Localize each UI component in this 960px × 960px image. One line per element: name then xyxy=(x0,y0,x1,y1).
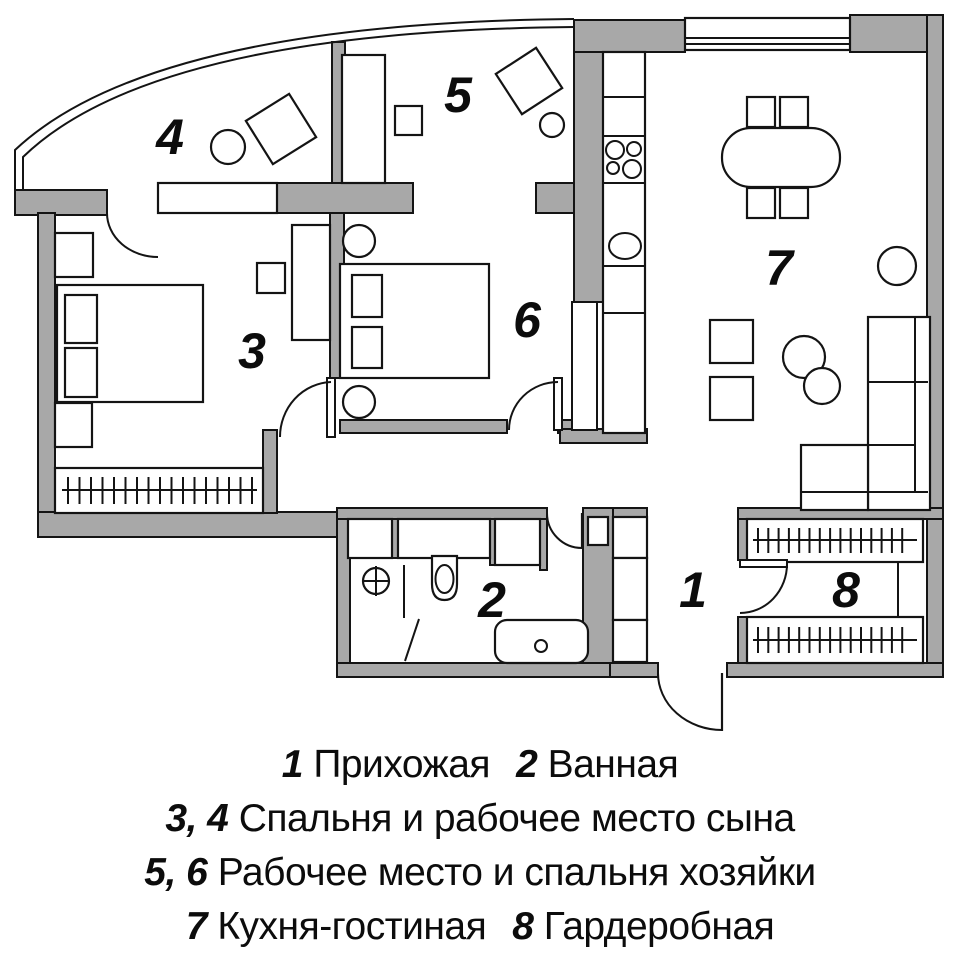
legend-room-number: 8 xyxy=(512,905,533,948)
pouf xyxy=(804,368,840,404)
hall-closet xyxy=(613,517,647,558)
wall-bottom-left xyxy=(38,512,337,537)
desk xyxy=(246,94,316,164)
room-3-furniture xyxy=(55,183,330,513)
legend-room-number: 2 xyxy=(516,743,537,786)
legend-entry: 8 Гардеробная xyxy=(512,905,774,948)
legend-room-name: Гардеробная xyxy=(533,905,774,948)
wall-bottom xyxy=(727,663,943,677)
legend-entry: 7 Кухня-гостиная xyxy=(186,905,486,948)
wall-kitchen-back xyxy=(574,20,603,302)
bathtub xyxy=(495,620,588,663)
legend-room-name: Прихожая xyxy=(303,743,490,786)
door-arc-room8 xyxy=(740,564,787,613)
bath-cabinet xyxy=(348,519,392,558)
legend-line-4: 7 Кухня-гостиная8 Гардеробная xyxy=(0,900,960,954)
wall-top xyxy=(574,20,685,52)
sofa xyxy=(801,445,868,510)
wall-stub xyxy=(263,430,277,513)
chair xyxy=(540,113,564,137)
door-arc-entrance xyxy=(658,673,722,730)
wall-room8-left xyxy=(738,519,747,560)
room-label-7: 7 xyxy=(765,240,795,296)
door-arc-room6 xyxy=(509,382,558,430)
dining-chair xyxy=(747,188,775,218)
stool xyxy=(395,106,422,135)
room-label-2: 2 xyxy=(477,572,506,628)
stool xyxy=(257,263,285,293)
wall xyxy=(536,183,574,213)
legend-room-number: 7 xyxy=(186,905,207,948)
door-arc-room3 xyxy=(280,382,331,437)
legend-entry: 5, 6 Рабочее место и спальня хозяйки xyxy=(144,851,815,894)
legend-line-2: 3, 4 Спальня и рабочее место сына xyxy=(0,792,960,846)
legend-room-name: Спальня и рабочее место сына xyxy=(228,797,794,840)
legend-line-1: 1 Прихожая2 Ванная xyxy=(0,738,960,792)
window-frame xyxy=(685,18,850,50)
legend-entry: 1 Прихожая xyxy=(282,743,490,786)
legend-room-name: Кухня-гостиная xyxy=(207,905,486,948)
wall-bottom xyxy=(337,663,610,677)
legend-room-number: 5, 6 xyxy=(144,851,207,894)
sofa xyxy=(868,317,930,510)
pillow xyxy=(352,327,382,368)
legend-entry: 3, 4 Спальня и рабочее место сына xyxy=(165,797,794,840)
bathroom-fixtures xyxy=(348,519,588,663)
bedside-stool xyxy=(343,386,375,418)
legend: 1 Прихожая2 Ванная3, 4 Спальня и рабочее… xyxy=(0,738,960,954)
chair xyxy=(211,130,245,164)
desk xyxy=(496,48,562,114)
floor-plan-drawing: 1 2 3 4 5 6 7 8 xyxy=(0,0,960,738)
wall-cabinet xyxy=(158,183,277,213)
door-leaf-room6 xyxy=(554,378,562,430)
chair xyxy=(878,247,916,285)
door-arc-bathroom xyxy=(547,513,582,548)
duct-shaft xyxy=(588,517,608,545)
legend-room-number: 3, 4 xyxy=(165,797,228,840)
kitchen-counter xyxy=(603,52,645,433)
bedside-stool xyxy=(343,225,375,257)
dining-table xyxy=(722,128,840,187)
bath-cabinet xyxy=(495,519,540,565)
room-label-4: 4 xyxy=(155,109,184,165)
door-leaf-room8 xyxy=(740,560,787,567)
room-7-furniture xyxy=(710,97,930,510)
wall xyxy=(15,190,107,215)
wall-left xyxy=(38,213,55,513)
window xyxy=(685,18,850,50)
door-leaf-room3 xyxy=(327,378,335,437)
bath-cabinet xyxy=(398,519,490,558)
hall-closet xyxy=(613,558,647,620)
wall-bath-top xyxy=(337,508,547,519)
nightstand xyxy=(55,233,93,277)
room-label-8: 8 xyxy=(832,562,860,618)
legend-room-name: Ванная xyxy=(537,743,678,786)
desk xyxy=(342,55,385,183)
floor-plan-page: 1 2 3 4 5 6 7 8 1 Прихожая2 Ванная3, 4 С… xyxy=(0,0,960,960)
wall-room8-left xyxy=(738,617,747,663)
pillow xyxy=(352,275,382,317)
cabinet xyxy=(292,225,330,340)
pillow xyxy=(65,348,97,397)
legend-entry: 2 Ванная xyxy=(516,743,678,786)
hall-closet xyxy=(613,620,647,662)
wall-bottom xyxy=(610,663,658,677)
wall xyxy=(277,183,413,213)
armchair xyxy=(710,377,753,420)
room-label-1: 1 xyxy=(679,562,707,618)
nightstand xyxy=(55,403,92,447)
legend-room-number: 1 xyxy=(282,743,303,786)
dining-chair xyxy=(780,97,808,127)
legend-line-3: 5, 6 Рабочее место и спальня хозяйки xyxy=(0,846,960,900)
wall-room6-bottom xyxy=(340,420,507,433)
room-label-3: 3 xyxy=(238,323,266,379)
dining-chair xyxy=(780,188,808,218)
room-label-5: 5 xyxy=(444,67,473,123)
sliding-door xyxy=(572,302,597,430)
pillow xyxy=(65,295,97,343)
room-4-furniture xyxy=(211,94,316,164)
door-arc-balcony xyxy=(107,213,158,257)
legend-room-name: Рабочее место и спальня хозяйки xyxy=(207,851,815,894)
room-label-6: 6 xyxy=(513,292,542,348)
wall-gap xyxy=(613,508,647,517)
armchair xyxy=(710,320,753,363)
dining-chair xyxy=(747,97,775,127)
shower-screen xyxy=(405,619,419,661)
